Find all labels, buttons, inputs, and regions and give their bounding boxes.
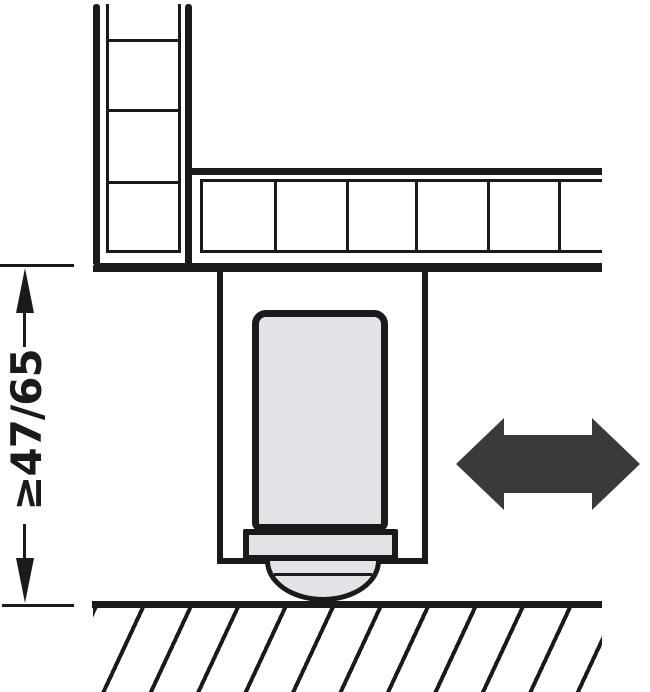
dimension-extension-line-bottom [2,604,74,607]
side-panel-rung [106,39,181,42]
foot-body [252,310,388,531]
side-panel-outer-right-line [185,4,192,264]
bottom-panel-rung [487,179,490,253]
floor-hatch-pattern [93,608,602,692]
panel-base-line [93,263,602,272]
foot-dome [265,561,381,602]
bottom-panel-rung [200,179,203,253]
dimension-arrow-up-icon [16,268,34,313]
floor-line [92,601,602,608]
dimension-label: ≥47/65 [4,340,50,520]
dimension-arrow-down-icon [16,558,34,603]
dimension-line-lower-shaft [23,524,26,560]
leg-housing-left-line [217,272,223,564]
bottom-panel-top-line [192,168,602,175]
side-panel-rung [106,250,181,253]
bottom-panel-rung [415,179,418,253]
leg-housing-right-line [422,272,428,564]
diagram-canvas: ≥47/65 [0,0,650,692]
foot-dome-seam-line [274,573,372,576]
bottom-panel-rung [558,179,561,253]
bottom-panel-inner-top-line [200,179,602,182]
bottom-panel-rung [274,179,277,253]
bottom-panel-rung [346,179,349,253]
foot-flange [243,529,398,561]
side-panel-rung [106,181,181,184]
side-panel-outer-left-line [93,4,100,264]
double-headed-arrow-shape [456,418,640,510]
horizontal-adjustment-arrow-icon [456,418,640,510]
dimension-extension-line-top [0,264,74,267]
bottom-panel-inner-bottom-line [200,250,602,253]
side-panel-rung [106,109,181,112]
